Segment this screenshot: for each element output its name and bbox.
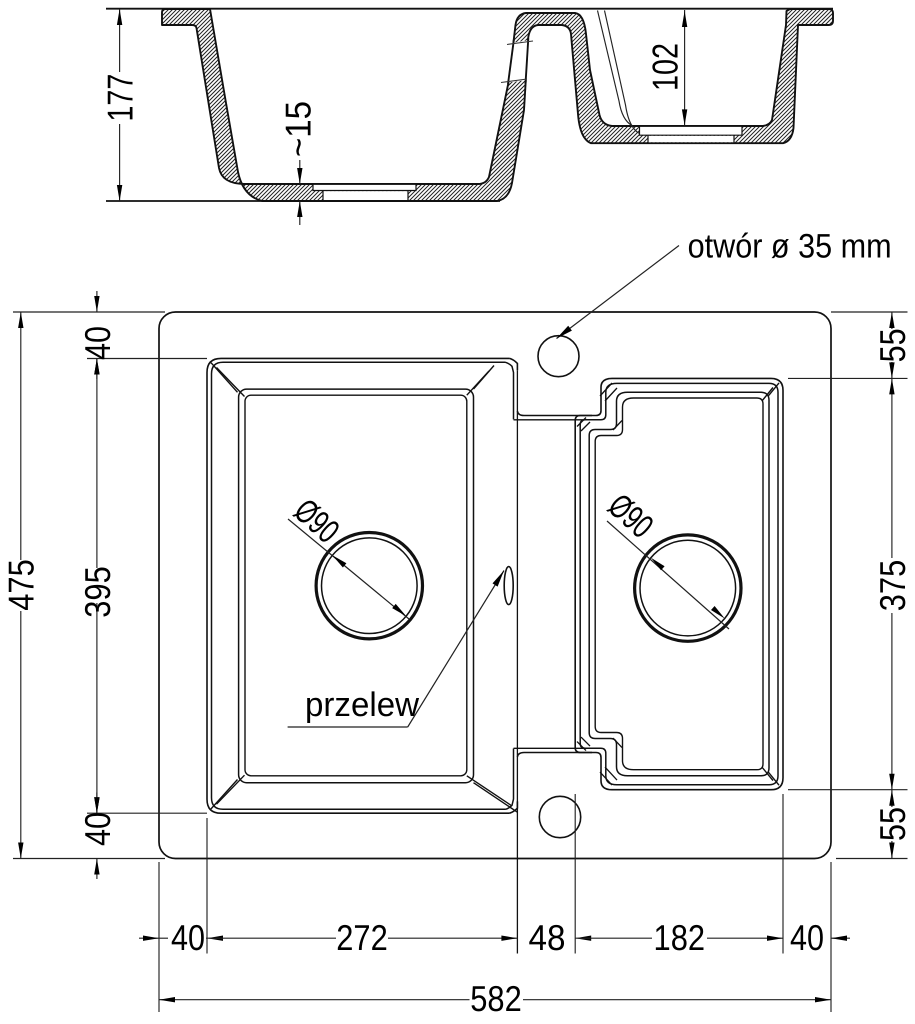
svg-text:395: 395 — [77, 566, 118, 618]
svg-text:182: 182 — [654, 917, 706, 958]
svg-text:102: 102 — [645, 43, 686, 91]
svg-text:55: 55 — [872, 807, 913, 841]
svg-text:272: 272 — [336, 917, 388, 958]
svg-text:48: 48 — [529, 917, 566, 958]
svg-text:otwór ø 35 mm: otwór ø 35 mm — [688, 228, 892, 266]
svg-text:177: 177 — [100, 74, 141, 122]
svg-text:~15: ~15 — [278, 101, 319, 157]
svg-text:40: 40 — [790, 917, 824, 958]
svg-text:375: 375 — [872, 560, 913, 612]
svg-text:przelew: przelew — [305, 686, 419, 724]
svg-text:40: 40 — [77, 326, 118, 360]
svg-text:40: 40 — [171, 917, 205, 958]
svg-text:475: 475 — [1, 559, 42, 611]
svg-text:40: 40 — [77, 812, 118, 846]
svg-text:582: 582 — [470, 978, 522, 1019]
svg-text:55: 55 — [872, 328, 913, 362]
